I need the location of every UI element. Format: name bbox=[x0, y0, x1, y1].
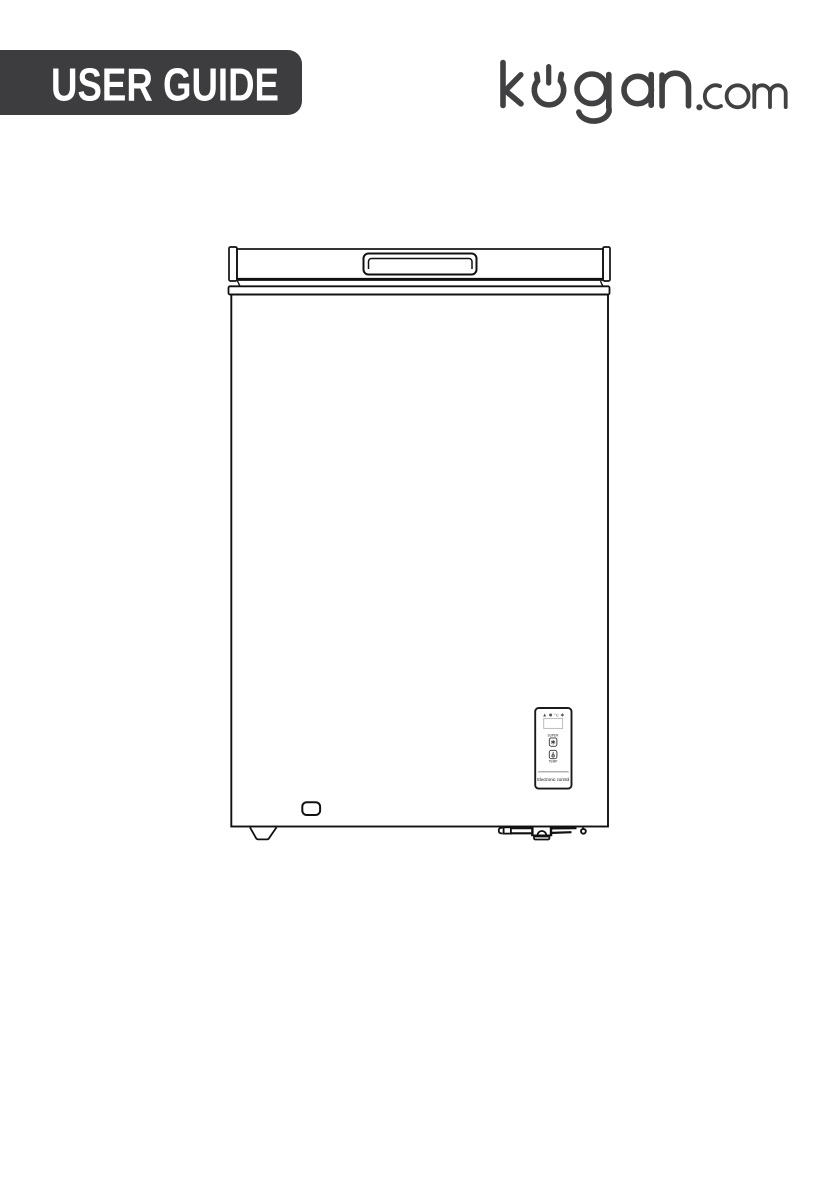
svg-text:Electronic control: Electronic control bbox=[537, 777, 569, 782]
svg-text:SUPER: SUPER bbox=[548, 734, 560, 738]
svg-text:°C: °C bbox=[554, 713, 559, 718]
svg-text:TEMP: TEMP bbox=[549, 760, 558, 764]
svg-text:USER GUIDE: USER GUIDE bbox=[51, 59, 279, 111]
